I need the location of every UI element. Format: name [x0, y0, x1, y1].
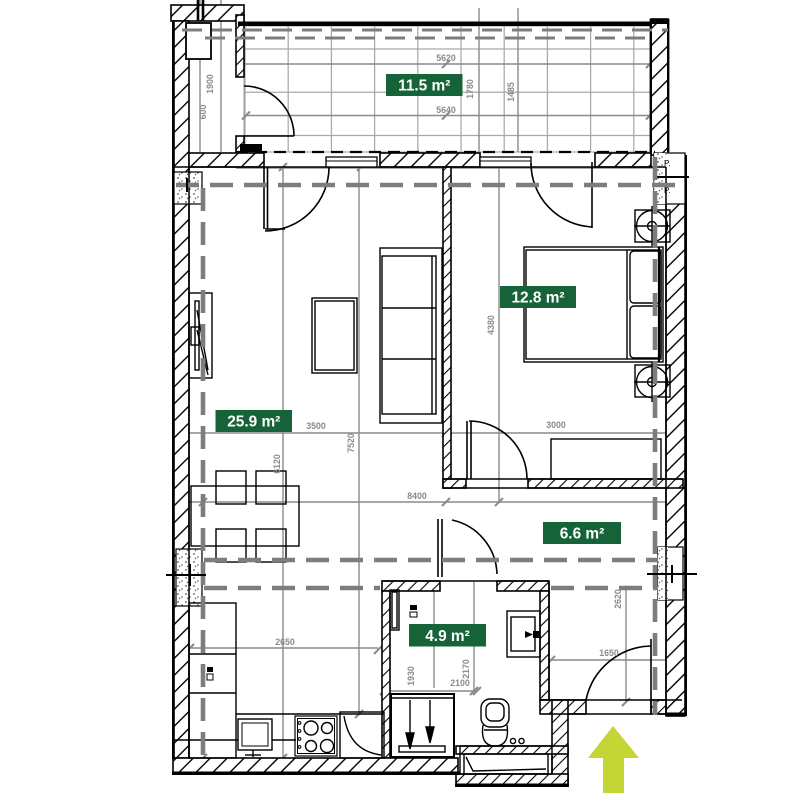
svg-text:1650: 1650: [599, 648, 619, 658]
svg-text:4380: 4380: [486, 315, 496, 335]
svg-text:600: 600: [198, 105, 208, 120]
svg-text:1900: 1900: [205, 74, 215, 94]
svg-text:11.5 m²: 11.5 m²: [398, 78, 450, 95]
svg-text:P.: P.: [664, 186, 671, 195]
svg-text:2620: 2620: [613, 589, 623, 609]
svg-text:2170: 2170: [461, 659, 471, 679]
svg-text:4.9 m²: 4.9 m²: [425, 628, 469, 645]
svg-text:1780: 1780: [465, 79, 475, 99]
svg-text:1930: 1930: [406, 666, 416, 686]
svg-text:12.8 m²: 12.8 m²: [511, 290, 564, 307]
svg-text:5620: 5620: [436, 53, 456, 63]
svg-text:8400: 8400: [407, 491, 427, 501]
svg-text:2650: 2650: [275, 637, 295, 647]
svg-text:3000: 3000: [546, 420, 566, 430]
svg-text:3500: 3500: [306, 421, 326, 431]
svg-text:7520: 7520: [346, 433, 356, 453]
svg-text:1485: 1485: [506, 82, 516, 102]
svg-text:25.9 m²: 25.9 m²: [227, 414, 280, 431]
svg-text:5640: 5640: [436, 105, 456, 115]
svg-text:6.6 m²: 6.6 m²: [560, 526, 604, 543]
svg-text:6120: 6120: [272, 454, 282, 474]
svg-text:2100: 2100: [450, 678, 470, 688]
